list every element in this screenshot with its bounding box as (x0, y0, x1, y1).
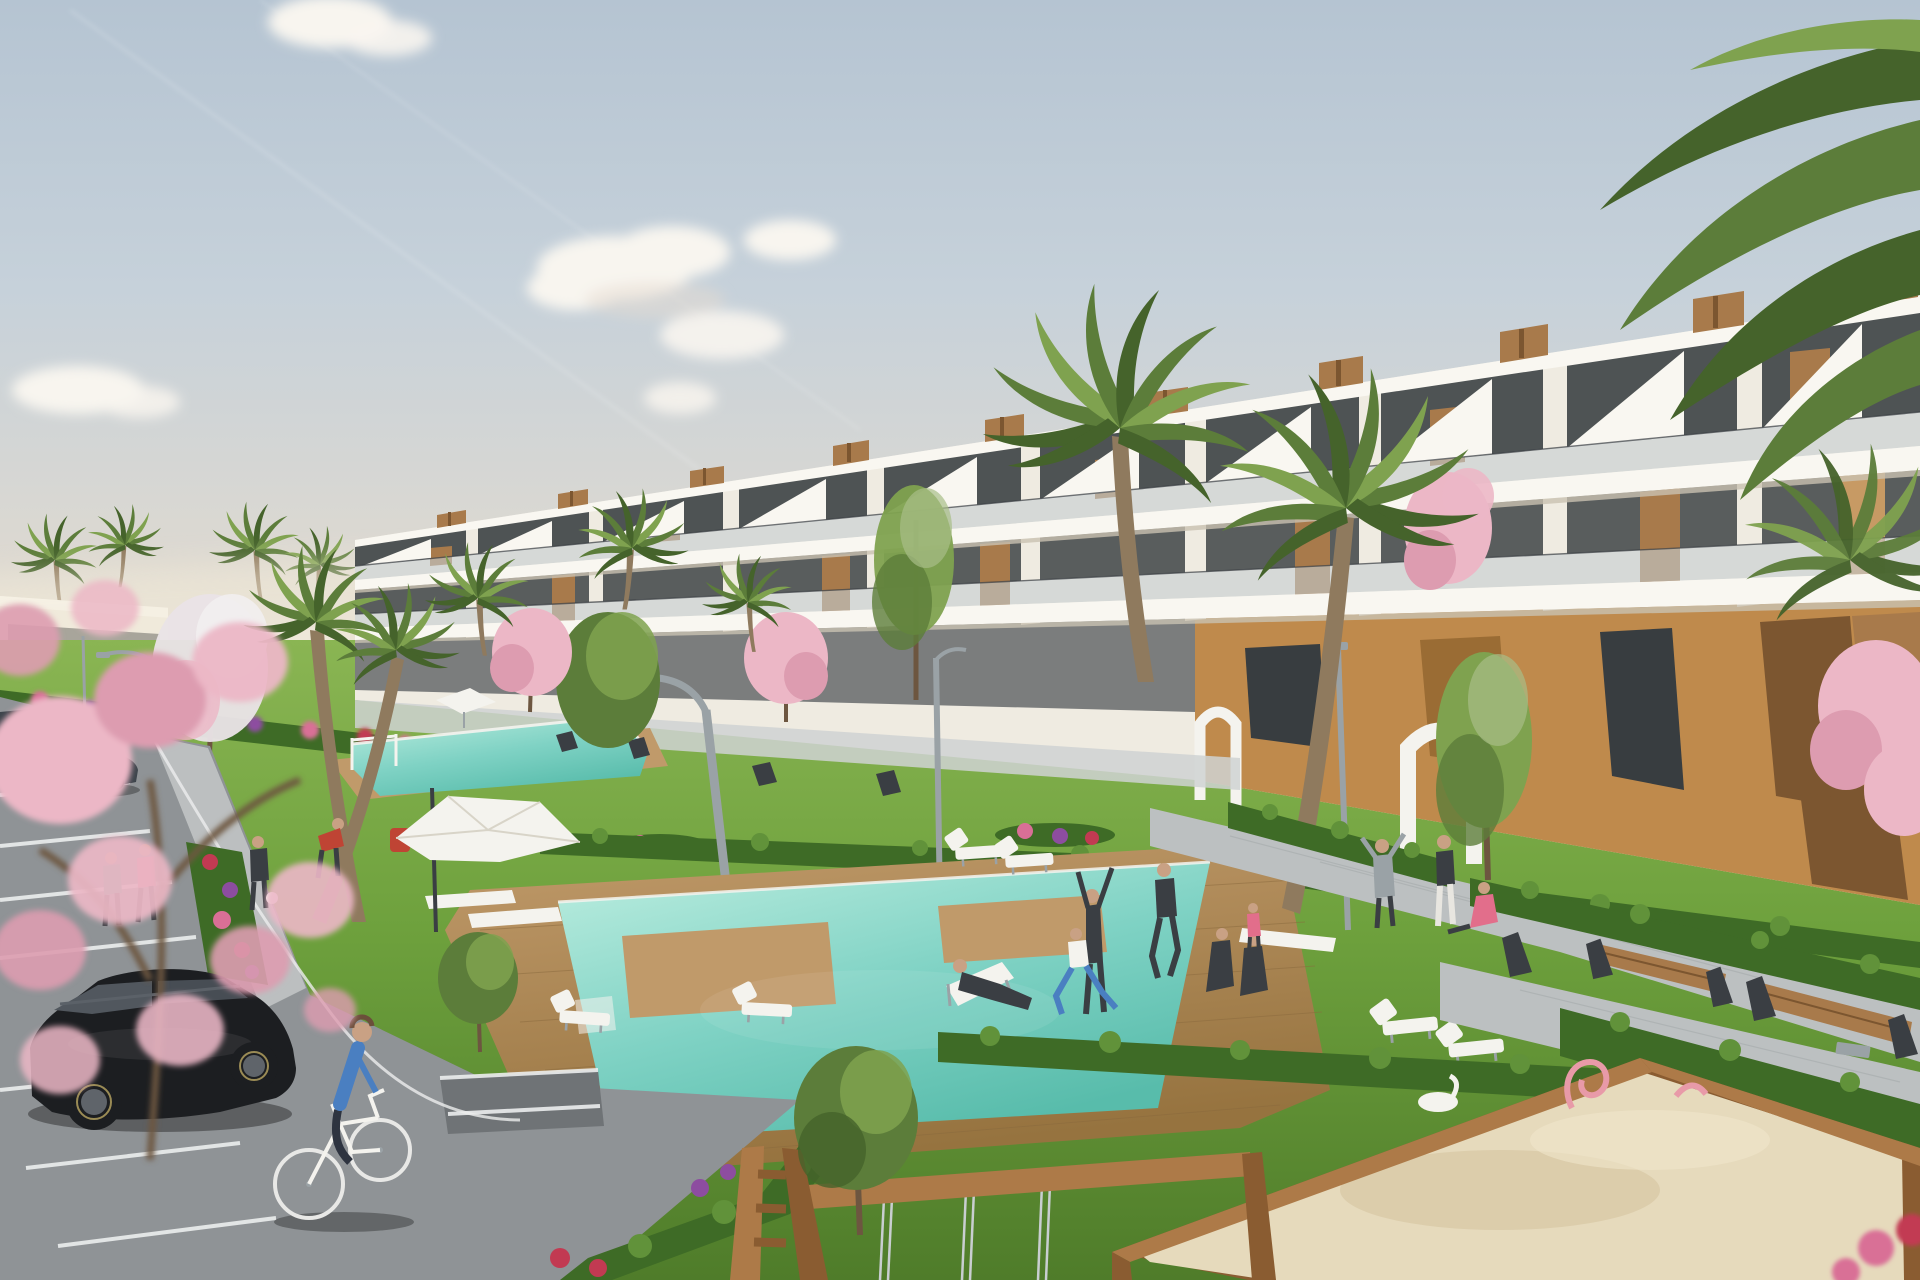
architectural-render (0, 0, 1920, 1280)
asphalt-stall-patch (440, 1070, 604, 1134)
green-tree-upper-left (556, 612, 660, 748)
scene-canvas (0, 0, 1920, 1280)
